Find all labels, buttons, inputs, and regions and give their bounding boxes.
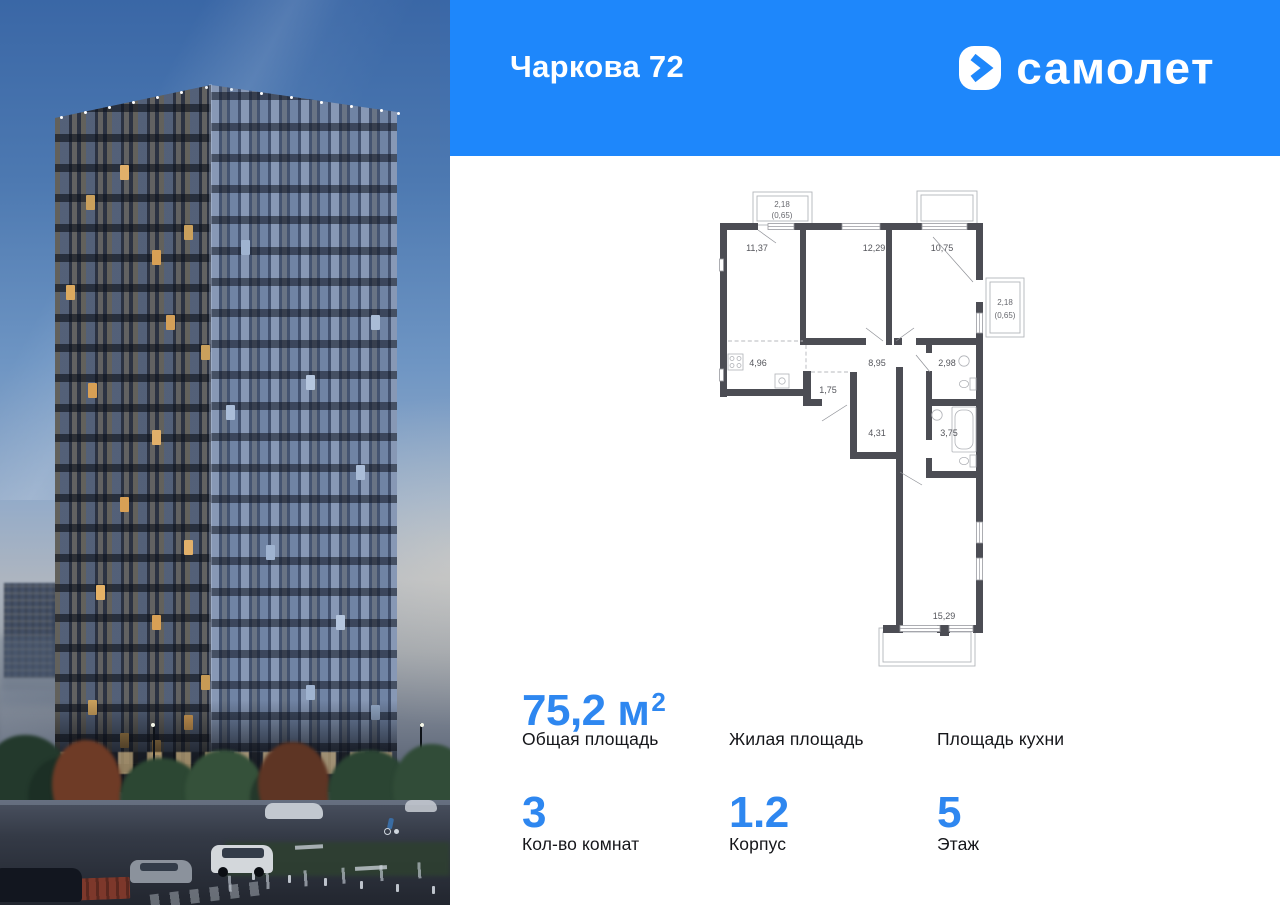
room-label: 3,75 <box>940 428 958 438</box>
superscript: 2 <box>651 687 665 717</box>
wheel <box>254 867 264 877</box>
brand-name: самолет <box>1016 46 1215 90</box>
stat-rooms-count: 3 Кол-во комнат <box>522 780 727 855</box>
building-photo <box>0 0 450 905</box>
tower-right-facade <box>211 85 397 782</box>
stat-value <box>937 678 1142 729</box>
room-label: 4,31 <box>868 428 886 438</box>
samolet-logo-icon <box>959 46 1001 90</box>
room-label: 2,98 <box>938 358 956 368</box>
balcony-label: 2,18 <box>774 200 790 209</box>
stat-total-area: 75,2 м2 Общая площадь <box>522 678 727 750</box>
stat-label: Корпус <box>729 834 934 855</box>
stat-label: Площадь кухни <box>937 729 1142 750</box>
stat-value: 3 <box>522 780 727 834</box>
room-label: 4,96 <box>749 358 767 368</box>
stat-number: 3 <box>522 788 546 837</box>
dark-car <box>0 868 82 902</box>
header-banner: Чаркова 72 самолет <box>450 0 1280 156</box>
car <box>405 800 437 812</box>
wheel <box>218 867 228 877</box>
car-windows <box>140 863 178 871</box>
stat-label: Этаж <box>937 834 1142 855</box>
lamp-lights <box>151 723 155 727</box>
stat-kitchen-area: Площадь кухни <box>937 678 1142 750</box>
brand-logo: самолет <box>959 45 1215 91</box>
roof-lights <box>60 116 63 119</box>
car-windows <box>222 848 264 858</box>
stat-living-area: Жилая площадь <box>729 678 934 750</box>
floor-plan: 11,37 12,29 10,75 4,96 8,95 2,98 1,75 4,… <box>690 175 1040 675</box>
stat-label: Жилая площадь <box>729 729 934 750</box>
stat-number: 75,2 м <box>522 686 649 735</box>
room-label: 11,37 <box>746 243 768 253</box>
stat-value <box>729 678 934 729</box>
room-label: 1,75 <box>819 385 837 395</box>
room-label: 12,29 <box>863 243 886 253</box>
room-label: 15,29 <box>933 611 956 621</box>
stat-value: 75,2 м2 <box>522 678 727 729</box>
project-title: Чаркова 72 <box>510 51 684 82</box>
balcony-label: (0,65) <box>995 311 1016 320</box>
stat-label: Общая площадь <box>522 729 727 750</box>
car <box>265 803 323 819</box>
balcony-label: (0,65) <box>772 211 793 220</box>
stat-floor: 5 Этаж <box>937 780 1142 855</box>
stat-value: 1.2 <box>729 780 934 834</box>
balcony-label: 2,18 <box>997 298 1013 307</box>
bicycle <box>384 828 391 835</box>
stat-building: 1.2 Корпус <box>729 780 934 855</box>
kitchen-zone-dashes <box>728 341 850 372</box>
stat-number: 5 <box>937 788 961 837</box>
stat-label: Кол-во комнат <box>522 834 727 855</box>
room-label: 10,75 <box>931 243 954 253</box>
curb-line <box>0 800 450 805</box>
stat-number: 1.2 <box>729 788 789 837</box>
tower-left-facade <box>55 85 211 802</box>
stat-value: 5 <box>937 780 1142 834</box>
chevron-icon <box>959 46 1001 90</box>
tower-corner-highlight <box>209 84 212 782</box>
room-label: 8,95 <box>868 358 886 368</box>
lit-windows <box>66 285 75 300</box>
